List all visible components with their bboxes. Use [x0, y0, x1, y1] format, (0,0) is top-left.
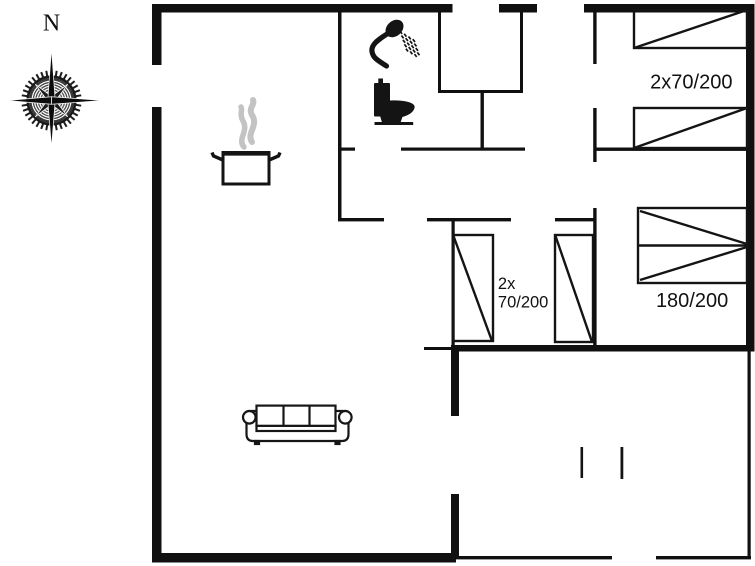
svg-text:180/200: 180/200: [656, 290, 728, 312]
svg-text:2x: 2x: [498, 275, 516, 293]
svg-text:70/200: 70/200: [498, 294, 548, 312]
svg-text:2x70/200: 2x70/200: [650, 72, 732, 94]
svg-text:N: N: [43, 11, 60, 37]
